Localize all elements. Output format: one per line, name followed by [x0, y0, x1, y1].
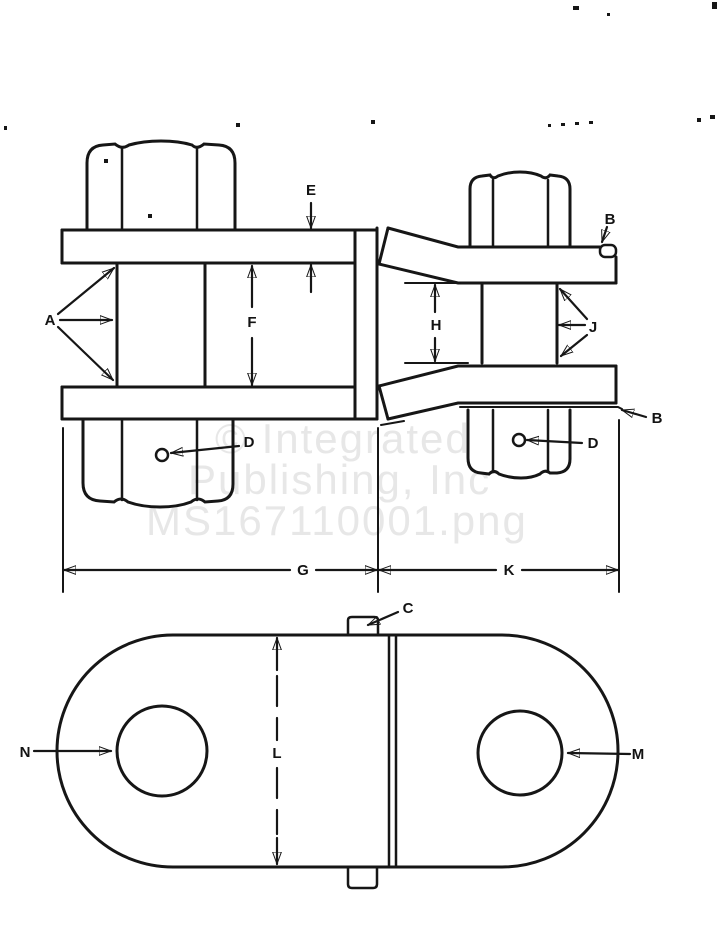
pin-hole-left: [117, 706, 207, 796]
label-A: A: [45, 312, 56, 329]
offset-link-drawing: A E F H J B B: [0, 0, 719, 943]
label-C: C: [403, 600, 414, 617]
spacer-tab-bottom: [348, 867, 377, 888]
j-arrow-bottom: [561, 335, 587, 356]
link-plate-outline: [57, 635, 618, 867]
label-N: N: [20, 744, 31, 761]
label-B-top: B: [605, 211, 616, 228]
right-link-plates: [379, 228, 622, 425]
b-bottom-arrow: [622, 410, 646, 417]
a-arrow-bottom: [58, 327, 113, 380]
scanned-technical-drawing: © Integrated Publishing, Inc MS167110001…: [0, 0, 719, 943]
offset-upper-plate-left-end: [379, 228, 388, 264]
left-pin: [117, 263, 205, 387]
offset-lower-plate-left-lip: [381, 421, 404, 425]
offset-upper-plate-bottom-edge: [379, 264, 616, 283]
label-F: F: [247, 314, 256, 331]
cotter-pin-hole-right: [513, 434, 525, 446]
label-L: L: [272, 745, 281, 762]
pin-hole-right: [478, 711, 562, 795]
d-left-arrow: [171, 446, 239, 453]
offset-lower-plate-left-end: [379, 386, 388, 419]
cotter-pin-hole-left: [156, 449, 168, 461]
j-arrow-top: [560, 289, 587, 319]
b-top-arrow: [602, 227, 607, 242]
label-D-right: D: [588, 435, 599, 452]
label-M: M: [632, 746, 645, 763]
side-view: [62, 141, 622, 507]
upper-plate-end-lip: [600, 245, 616, 257]
m-arrow: [568, 753, 630, 754]
c-arrow: [368, 612, 398, 625]
label-K: K: [504, 562, 515, 579]
spacer-tab-top: [348, 617, 378, 635]
center-pin: [355, 228, 377, 419]
label-H: H: [431, 317, 442, 334]
offset-lower-plate-bottom-edge: [388, 403, 616, 419]
right-bottom-hex-nut: [468, 410, 570, 478]
label-D-left: D: [244, 434, 255, 451]
offset-lower-plate-top-edge: [379, 366, 616, 386]
a-arrow-top: [58, 268, 114, 314]
right-top-hex-nut: [470, 172, 570, 246]
right-pin: [482, 283, 557, 363]
offset-lower-plate-lip: [460, 407, 622, 409]
d-right-arrow: [527, 440, 582, 443]
label-E: E: [306, 182, 316, 199]
left-top-hex-nut: [87, 141, 235, 230]
label-G: G: [297, 562, 309, 579]
left-bottom-hex-nut: [83, 420, 233, 507]
scan-artifacts: [4, 2, 717, 218]
plan-view: C L N M: [20, 600, 645, 888]
left-link-plates: [62, 230, 377, 419]
label-J: J: [589, 319, 597, 336]
label-B-bottom: B: [652, 410, 663, 427]
